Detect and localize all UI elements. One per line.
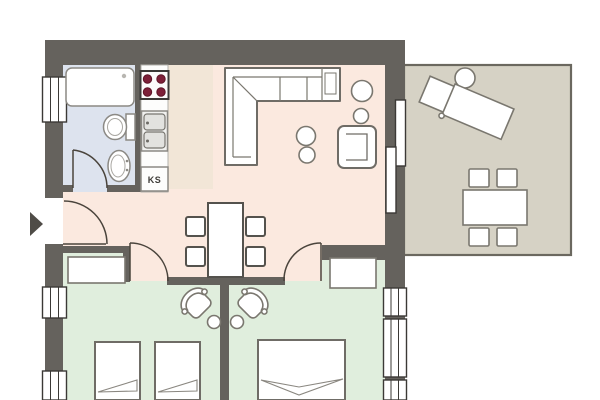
bed-double xyxy=(258,340,345,400)
coffee-table-round xyxy=(299,147,315,163)
terrace-chair xyxy=(469,169,489,187)
dining-table xyxy=(208,203,243,277)
dining-chair xyxy=(246,217,265,236)
terrace-chair xyxy=(469,228,489,246)
entrance-opening xyxy=(43,198,63,244)
plant-circle-large xyxy=(352,81,373,102)
bathtub xyxy=(66,68,134,106)
toilet xyxy=(104,114,136,140)
dining-chair xyxy=(186,217,205,236)
terrace xyxy=(404,65,571,255)
floor-plan-canvas: KS xyxy=(0,0,600,400)
stool-round xyxy=(208,316,221,329)
dining-chair xyxy=(246,247,265,266)
bathtub-drain xyxy=(122,74,126,78)
window-bedroom-right-1 xyxy=(384,288,407,316)
fridge-label: KS xyxy=(148,175,162,185)
floor-plan: KS xyxy=(0,0,600,400)
sliding-door-panel-inner xyxy=(386,147,396,213)
stove-burner xyxy=(143,88,151,96)
entrance-arrow-icon xyxy=(30,212,43,236)
plant-circle-small xyxy=(354,109,369,124)
sink-faucet xyxy=(146,122,149,125)
window-bedroom-right-2 xyxy=(384,319,407,377)
coffee-table-round xyxy=(297,127,316,146)
window-bedroom-left-lower xyxy=(43,371,67,400)
terrace-chair xyxy=(497,169,517,187)
window-bathroom xyxy=(43,77,67,122)
terrace-chair xyxy=(497,228,517,246)
window-bedroom-left-upper xyxy=(43,287,67,318)
wall-top xyxy=(45,40,405,65)
stool-round xyxy=(231,316,244,329)
wall-hallway xyxy=(63,246,130,253)
terrace-table xyxy=(463,190,527,225)
washbasin xyxy=(108,151,130,182)
stove-burner xyxy=(157,88,165,96)
fridge: KS xyxy=(141,167,168,191)
wardrobe xyxy=(330,258,376,288)
stove xyxy=(141,71,169,99)
wardrobe xyxy=(68,257,125,283)
window-bedroom-right-3 xyxy=(384,380,407,400)
sliding-door-panel-outer xyxy=(396,100,406,166)
armchair xyxy=(338,126,376,168)
stove-burner xyxy=(157,75,165,83)
sink-faucet xyxy=(146,140,149,143)
wall-bathroom-bottom-stub xyxy=(63,185,73,192)
wall-bedroom-divider xyxy=(220,277,229,400)
bed-single xyxy=(95,342,140,400)
kitchen-units: KS xyxy=(141,65,169,192)
wall-bathroom-bottom xyxy=(107,185,141,192)
dining-chair xyxy=(186,247,205,266)
bed-single xyxy=(155,342,200,400)
kitchen-sink xyxy=(142,111,168,151)
stove-burner xyxy=(143,75,151,83)
lounger-wheel xyxy=(438,112,445,119)
